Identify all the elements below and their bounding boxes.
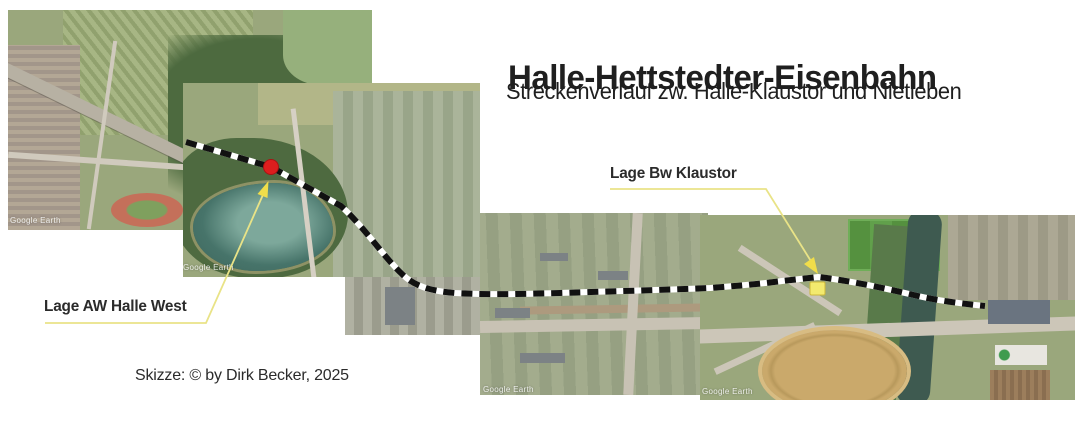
satellite-tile-midstrip — [345, 277, 480, 335]
building — [520, 353, 565, 363]
rail-yard — [990, 370, 1050, 400]
label-bw-klaustor: Lage Bw Klaustor — [610, 165, 737, 183]
google-earth-watermark: Google Earth — [183, 263, 234, 272]
satellite-tile-bottom-center: Google Earth — [480, 213, 708, 395]
google-earth-watermark: Google Earth — [10, 216, 61, 225]
google-earth-watermark: Google Earth — [483, 385, 534, 394]
building — [598, 271, 628, 280]
credit-line: Skizze: © by Dirk Becker, 2025 — [135, 367, 349, 385]
label-aw-halle-west: Lage AW Halle West — [44, 298, 187, 316]
building — [385, 287, 415, 325]
building — [495, 308, 530, 318]
interchange-ramp — [738, 245, 842, 316]
google-earth-watermark: Google Earth — [702, 387, 753, 396]
city-blocks-area — [948, 215, 1075, 300]
building — [540, 253, 568, 261]
route-sketch-canvas: Google Earth Google Earth Google Earth — [0, 0, 1080, 422]
grass-hill-area — [283, 10, 372, 85]
supermarket-building — [995, 345, 1047, 365]
satellite-tile-east: Google Earth — [700, 215, 1075, 400]
station-building — [988, 300, 1050, 324]
satellite-tile-center: Google Earth — [183, 83, 480, 277]
page-subtitle: Streckenverlauf zw. Halle-Klaustor und N… — [506, 78, 961, 105]
stadium-oval — [111, 193, 183, 227]
housing-blocks-area — [333, 91, 480, 277]
